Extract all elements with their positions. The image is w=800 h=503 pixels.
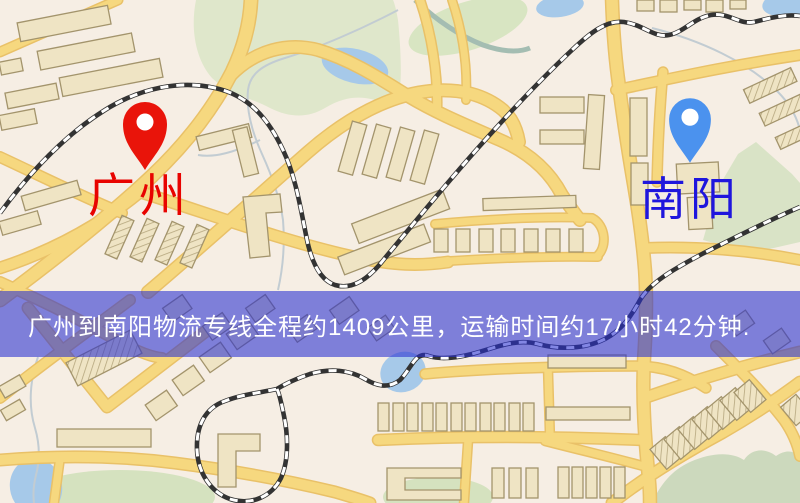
map-canvas (0, 0, 800, 503)
banner-text: 广州到南阳物流专线全程约1409公里，运输时间约17小时42分钟. (0, 307, 750, 342)
info-banner: 广州到南阳物流专线全程约1409公里，运输时间约17小时42分钟. (0, 291, 800, 357)
origin-label: 广州 (84, 172, 194, 219)
destination-label: 南阳 (636, 176, 744, 222)
map-screenshot: 广州 南阳 广州到南阳物流专线全程约1409公里，运输时间约17小时42分钟. (0, 0, 800, 503)
